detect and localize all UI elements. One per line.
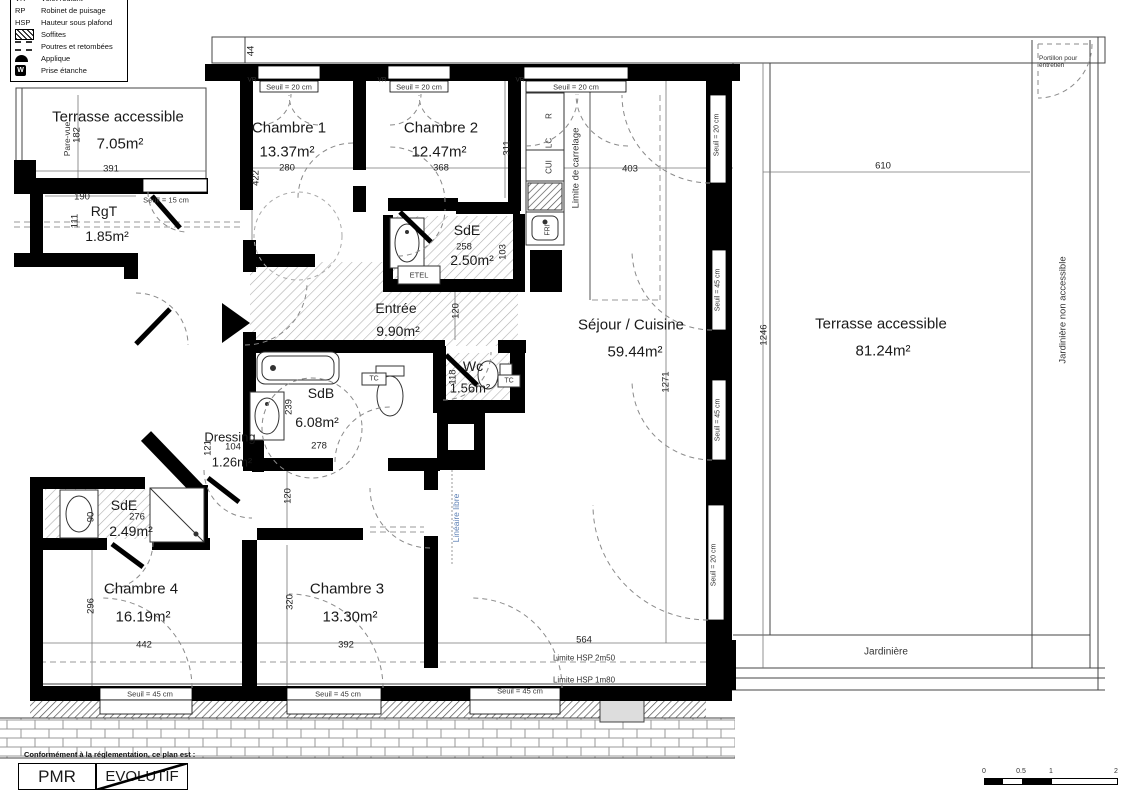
dim-chambre4-h: 296 <box>86 598 97 614</box>
kitchen-r: R <box>545 113 554 119</box>
scale-tick-05: 0.5 <box>1016 768 1026 775</box>
dim-sejour-w: 564 <box>576 635 592 646</box>
lineaire-libre-label: Linéaire libre <box>451 494 461 543</box>
room-area-terrasse-nw: 7.05m² <box>97 136 144 153</box>
dim-entree-h: 120 <box>451 303 462 319</box>
limite-hsp-180: Limite HSP 1m80 <box>553 676 615 685</box>
seuil45-fen1: Seuil = 45 cm <box>127 690 173 699</box>
floorplan-page: VR Volet roulant RP Robinet de puisage H… <box>0 0 1124 800</box>
dim-rgt-h: 111 <box>70 214 81 228</box>
dim-sejour-h: 1271 <box>661 371 672 392</box>
seuil20-sejour-1: Seuil = 20 cm <box>714 114 721 157</box>
dim-dressing-w: 104 <box>225 442 241 453</box>
diagonal-wall <box>146 436 198 490</box>
seuil20-cuisine: Seuil = 20 cm <box>553 83 599 92</box>
pmr-box: PMR <box>18 763 96 790</box>
tc-1: TC <box>369 376 378 383</box>
limite-hsp-250: Limite HSP 2m50 <box>553 654 615 663</box>
prise-etanche-icon: W <box>15 65 26 76</box>
kitchen-cui: CUI <box>545 160 554 174</box>
footer-note: Conformément à la réglementation, ce pla… <box>24 750 195 759</box>
room-label-sde-haut: SdE <box>454 222 480 238</box>
room-area-chambre1: 13.37m² <box>259 144 314 161</box>
dim-chambre3-w: 392 <box>338 640 354 651</box>
room-label-sdb: SdB <box>308 385 334 401</box>
scale-bar <box>984 778 1118 785</box>
scale-tick-0: 0 <box>982 768 986 775</box>
dim-top-band: 44 <box>246 46 257 57</box>
legend-row-prise: W Prise étanche <box>15 64 127 76</box>
portillon-label: Portillon pour entretien <box>1039 55 1081 69</box>
vr-3: VR <box>515 77 524 84</box>
dim-sdb-w: 278 <box>311 441 327 452</box>
dim-chambre1-w: 280 <box>279 163 295 174</box>
tc-2: TC <box>504 378 513 385</box>
dim-sdb-h: 239 <box>284 399 295 415</box>
room-label-entree: Entrée <box>375 300 416 316</box>
legend-box: VR Volet roulant RP Robinet de puisage H… <box>10 0 128 82</box>
room-area-sejour: 59.44m² <box>607 344 662 361</box>
etel-label: ETEL <box>410 271 429 280</box>
seuil45-fen2: Seuil = 45 cm <box>315 690 361 699</box>
room-area-rgt: 1.85m² <box>85 228 129 244</box>
pare-vue-label: Pare-vue <box>62 122 72 157</box>
room-label-sejour: Séjour / Cuisine <box>578 317 684 334</box>
legend-row-soffites: Soffites <box>15 28 127 40</box>
dim-sde-bas-w: 276 <box>129 512 145 523</box>
evolutif-strike <box>96 763 188 790</box>
room-area-chambre4: 16.19m² <box>115 609 170 626</box>
room-area-sde-haut: 2.50m² <box>450 252 494 268</box>
dim-terrasse-nw-w: 391 <box>103 164 119 175</box>
legend-row-applique: Applique <box>15 52 127 64</box>
dim-chambre4-w: 442 <box>136 640 152 651</box>
vr-2: VR <box>377 77 386 84</box>
scale-tick-1: 1 <box>1049 768 1053 775</box>
dim-terrasse-e-h: 1246 <box>759 324 770 345</box>
legend-abbr: VR <box>15 0 41 3</box>
dim-chambre2-w: 368 <box>433 163 449 174</box>
seuil45-sejour-1: Seuil = 45 cm <box>715 269 722 312</box>
jardiniere-na-label: Jardinière non accessible <box>1058 256 1069 363</box>
seuil20-sejour-2: Seuil = 20 cm <box>711 544 718 587</box>
room-area-entree: 9.90m² <box>376 323 420 339</box>
dim-dressing-h: 121 <box>203 440 214 456</box>
dim-chambre3-h: 320 <box>285 594 296 610</box>
seuil20-chambre1: Seuil = 20 cm <box>266 83 312 92</box>
poutres-icon <box>15 41 32 51</box>
kitchen-lc: LC <box>545 138 554 148</box>
seuil45-sejour-2: Seuil = 45 cm <box>715 399 722 442</box>
dim-chambre1-h: 422 <box>251 170 262 186</box>
soffites-icon <box>15 29 34 40</box>
seuil20-chambre2: Seuil = 20 cm <box>396 83 442 92</box>
dim-sde-haut-w: 258 <box>456 242 472 253</box>
dim-sde-haut-h: 103 <box>498 244 509 260</box>
kitchen-fri: FRI <box>545 224 552 235</box>
limite-carrelage-label: Limite de carrelage <box>571 128 582 209</box>
vr-1: VR <box>247 77 256 84</box>
room-label-chambre2: Chambre 2 <box>404 120 478 137</box>
room-area-sde-bas: 2.49m² <box>109 523 153 539</box>
duct-opening <box>448 424 474 450</box>
room-label-chambre1: Chambre 1 <box>252 120 326 137</box>
legend-row-rp: RP Robinet de puisage <box>15 4 127 16</box>
dim-couloir-w: 120 <box>283 488 294 504</box>
seuil15-label: Seuil = 15 cm <box>143 196 189 205</box>
room-label-chambre4: Chambre 4 <box>104 581 178 598</box>
seuil45-fen3: Seuil = 45 cm <box>497 687 543 696</box>
applique-icon <box>15 55 28 62</box>
room-area-chambre3: 13.30m² <box>322 609 377 626</box>
legend-row-poutres: Poutres et retombées <box>15 40 127 52</box>
jardiniere-label: Jardinière <box>864 647 908 658</box>
scale-tick-2: 2 <box>1114 768 1118 775</box>
legend-row-hsp: HSP Hauteur sous plafond <box>15 16 127 28</box>
room-label-rgt: RgT <box>91 203 117 219</box>
dim-cuisine-w: 403 <box>622 164 638 175</box>
room-area-terrasse-e: 81.24m² <box>855 343 910 360</box>
dim-terrasse-nw-h: 182 <box>72 127 83 143</box>
room-area-dressing: 1.26m² <box>212 455 252 470</box>
dim-terrasse-e-w: 610 <box>875 161 891 172</box>
dim-chambre2-h: 311 <box>502 140 513 155</box>
room-area-chambre2: 12.47m² <box>411 144 466 161</box>
room-area-sdb: 6.08m² <box>295 414 339 430</box>
room-label-wc: Wc <box>463 358 483 374</box>
room-label-chambre3: Chambre 3 <box>310 581 384 598</box>
dim-sde-bas-h: 90 <box>86 512 97 523</box>
dim-rgt-w: 190 <box>74 192 90 203</box>
room-label-terrasse-e: Terrasse accessible <box>815 316 947 333</box>
dim-wc-h: 118 <box>448 369 459 384</box>
